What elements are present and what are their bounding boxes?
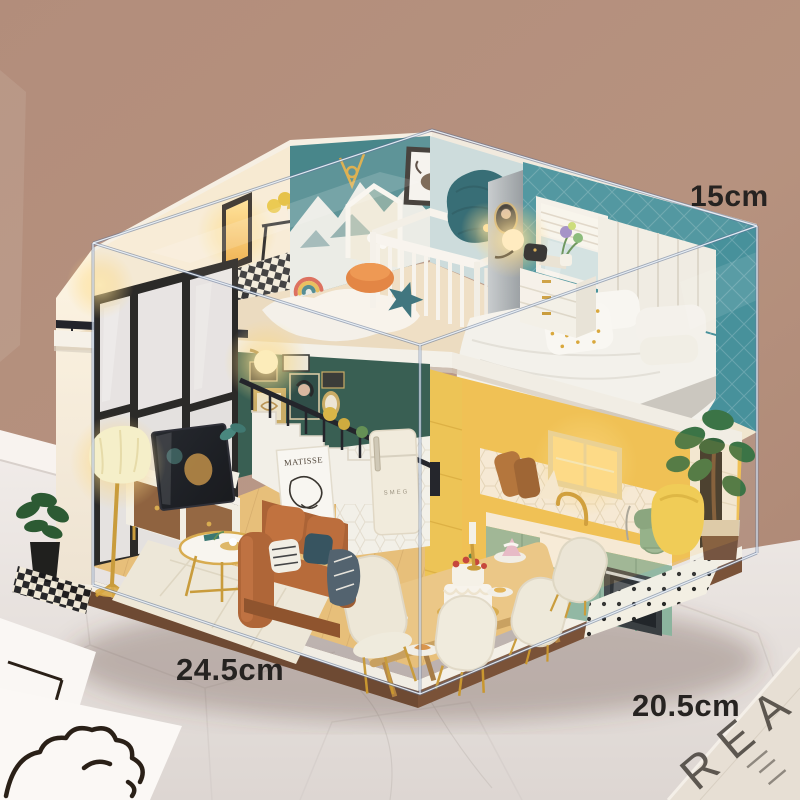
product-photo-scene: MATISSE SMEG: [0, 0, 800, 800]
width-dimension-label: 24.5cm: [176, 652, 284, 688]
height-dimension-label: 15cm: [690, 180, 769, 214]
depth-dimension-label: 20.5cm: [632, 688, 740, 724]
dollhouse-photo-illustration: MATISSE SMEG: [0, 0, 800, 800]
